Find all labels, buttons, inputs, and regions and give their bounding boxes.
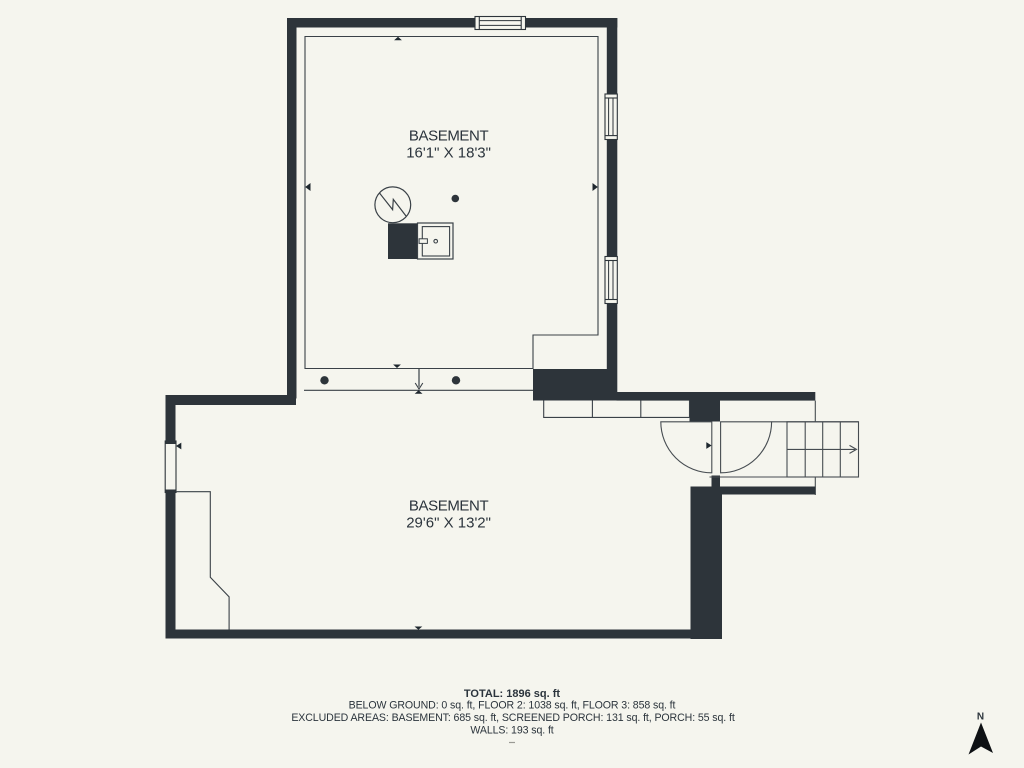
svg-text:BELOW GROUND: 0 sq. ft, FLOOR: BELOW GROUND: 0 sq. ft, FLOOR 2: 1038 sq… [349,699,676,711]
svg-text:EXCLUDED AREAS: BASEMENT: 685: EXCLUDED AREAS: BASEMENT: 685 sq. ft, SC… [291,712,735,724]
svg-text:WALLS: 193 sq. ft: WALLS: 193 sq. ft [470,724,553,736]
svg-text:TOTAL: 1896 sq. ft: TOTAL: 1896 sq. ft [464,688,561,700]
svg-text:16'1" X 18'3": 16'1" X 18'3" [406,144,491,161]
svg-text:N: N [977,712,984,723]
svg-text:BASEMENT: BASEMENT [409,497,489,514]
svg-text:BASEMENT: BASEMENT [409,128,489,145]
svg-text:29'6" X 13'2": 29'6" X 13'2" [406,514,491,531]
